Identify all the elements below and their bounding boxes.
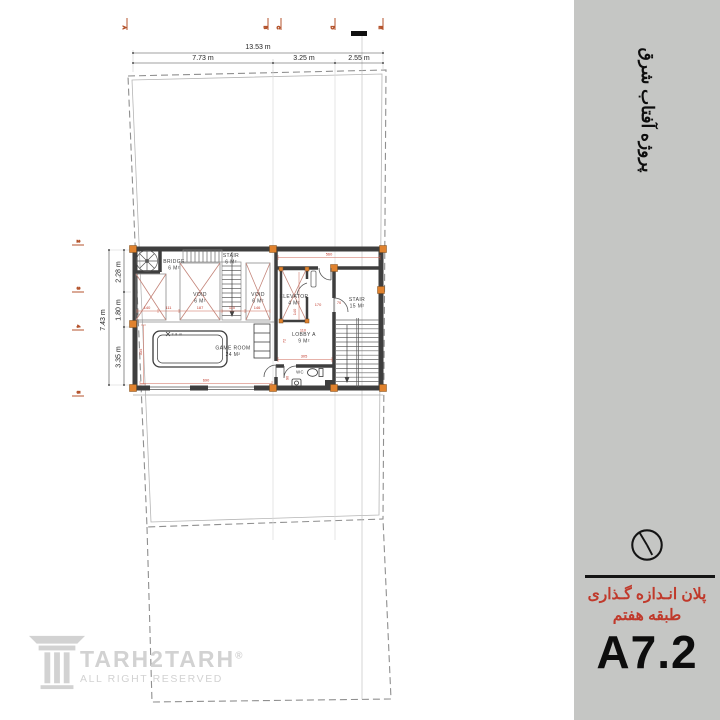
- svg-text:305: 305: [301, 354, 308, 359]
- project-title: پروژه آفتاب شرق: [637, 48, 657, 173]
- grid-label: 4: [76, 325, 81, 328]
- svg-text:VOID: VOID: [251, 292, 265, 298]
- plan-title-line2: طبقه هفتم: [574, 606, 720, 627]
- svg-text:6 M²: 6 M²: [225, 260, 237, 266]
- room-label-elevator: ELEVATOR4 M²: [279, 294, 308, 307]
- svg-text:6 M²: 6 M²: [168, 266, 180, 272]
- top-dimensions: 13.53 m 7.73 m 3.25 m 2.55 m: [132, 44, 384, 72]
- svg-text:24 M²: 24 M²: [226, 352, 241, 358]
- svg-text:15 M²: 15 M²: [350, 304, 365, 310]
- svg-text:187: 187: [197, 305, 204, 310]
- toilet: [308, 369, 324, 377]
- svg-text:110: 110: [229, 305, 236, 310]
- svg-text:146: 146: [254, 305, 261, 310]
- dim-segment: 7.73 m: [192, 55, 214, 62]
- svg-text:335: 335: [138, 349, 143, 356]
- sheet-number: A7.2: [574, 625, 720, 679]
- svg-text:3.8 m: 3.8 m: [172, 333, 183, 337]
- svg-text:6 M²: 6 M²: [252, 299, 264, 305]
- svg-text:6 M²: 6 M²: [194, 299, 206, 305]
- svg-text:70: 70: [337, 300, 342, 305]
- dim-segment: 2.28 m: [116, 261, 123, 283]
- svg-text:111: 111: [166, 305, 172, 310]
- grid-markers-top: A B C D E: [122, 18, 383, 36]
- svg-text:170: 170: [315, 302, 322, 307]
- room-label-wc: WC: [296, 370, 304, 375]
- grid-label: 5: [76, 391, 81, 394]
- brand-tagline: ALL RIGHT RESERVED: [80, 673, 245, 685]
- svg-text:4 M²: 4 M²: [288, 301, 300, 307]
- scale-bar: [351, 31, 367, 36]
- svg-text:560: 560: [326, 252, 333, 257]
- svg-text:BRIDGE: BRIDGE: [163, 259, 185, 265]
- grid-label: E: [378, 26, 383, 29]
- clock-icon: [628, 526, 666, 564]
- sofa: [254, 324, 270, 358]
- grid-label: B: [263, 26, 268, 29]
- room-label-void-left: VOID6 M²: [193, 292, 207, 305]
- plan-title-line1: پلان انـدازه گـذاری: [574, 585, 720, 606]
- room-label-stair-right: STAIR15 M²: [349, 297, 365, 310]
- dim-segment: 1.80 m: [116, 299, 123, 321]
- spiral-stair: [137, 251, 158, 272]
- window: [150, 385, 190, 390]
- dim-total-top: 13.53 m: [245, 44, 270, 51]
- grid-label: 2: [76, 240, 81, 243]
- room-label-game-room: GAME ROOM24 M²: [215, 346, 250, 359]
- room-label-void-right: VOID6 M²: [251, 292, 265, 305]
- svg-text:GAME ROOM: GAME ROOM: [215, 346, 250, 352]
- room-label-lobby: LOBBY A9 M²: [292, 332, 316, 345]
- dim-segment: 2.55 m: [348, 55, 370, 62]
- logo: TARH2TARH® ALL RIGHT RESERVED: [28, 632, 245, 692]
- level-marker: 3.8 m: [166, 332, 183, 337]
- svg-text:90: 90: [285, 375, 290, 380]
- svg-text:72: 72: [282, 339, 287, 343]
- svg-text:9 M²: 9 M²: [298, 339, 310, 345]
- sidebar: پروژه آفتاب شرق پلان انـدازه گـذاری طبقه…: [574, 0, 720, 720]
- window: [208, 385, 254, 390]
- room-label-stair-top: STAIR6 M²: [223, 253, 239, 266]
- svg-text:LOBBY A: LOBBY A: [292, 332, 316, 338]
- svg-text:STAIR: STAIR: [223, 253, 239, 259]
- divider-line: [585, 575, 715, 578]
- svg-text:WC: WC: [296, 370, 304, 375]
- plan-title: پلان انـدازه گـذاری طبقه هفتم: [574, 585, 720, 627]
- svg-text:VOID: VOID: [193, 292, 207, 298]
- dim-segment: 3.25 m: [293, 55, 315, 62]
- dim-total-left: 7.43 m: [100, 309, 107, 331]
- svg-text:140: 140: [144, 305, 151, 310]
- registered-mark: ®: [235, 650, 244, 661]
- grid-label: D: [330, 26, 335, 30]
- shaft-duct: [311, 271, 316, 287]
- grid-label: C: [276, 26, 281, 30]
- svg-text:STAIR: STAIR: [349, 297, 365, 303]
- left-dimensions: 7.43 m 2.28 m 1.80 m 3.35 m: [100, 249, 131, 386]
- svg-text:140: 140: [292, 308, 297, 315]
- brand-name: TARH2TARH®: [80, 648, 245, 671]
- grid-markers-left: 2 3 4 5: [72, 240, 84, 396]
- column-icon: [28, 632, 86, 692]
- svg-text:ELEVATOR: ELEVATOR: [279, 294, 308, 300]
- grid-label: A: [122, 26, 127, 29]
- svg-text:690: 690: [203, 378, 210, 383]
- sheet-page: A B C D E 2 3 4 5 13.53 m 7.73 m 3.25 m …: [0, 0, 720, 720]
- grid-label: 3: [76, 287, 81, 290]
- dim-segment: 3.35 m: [116, 346, 123, 368]
